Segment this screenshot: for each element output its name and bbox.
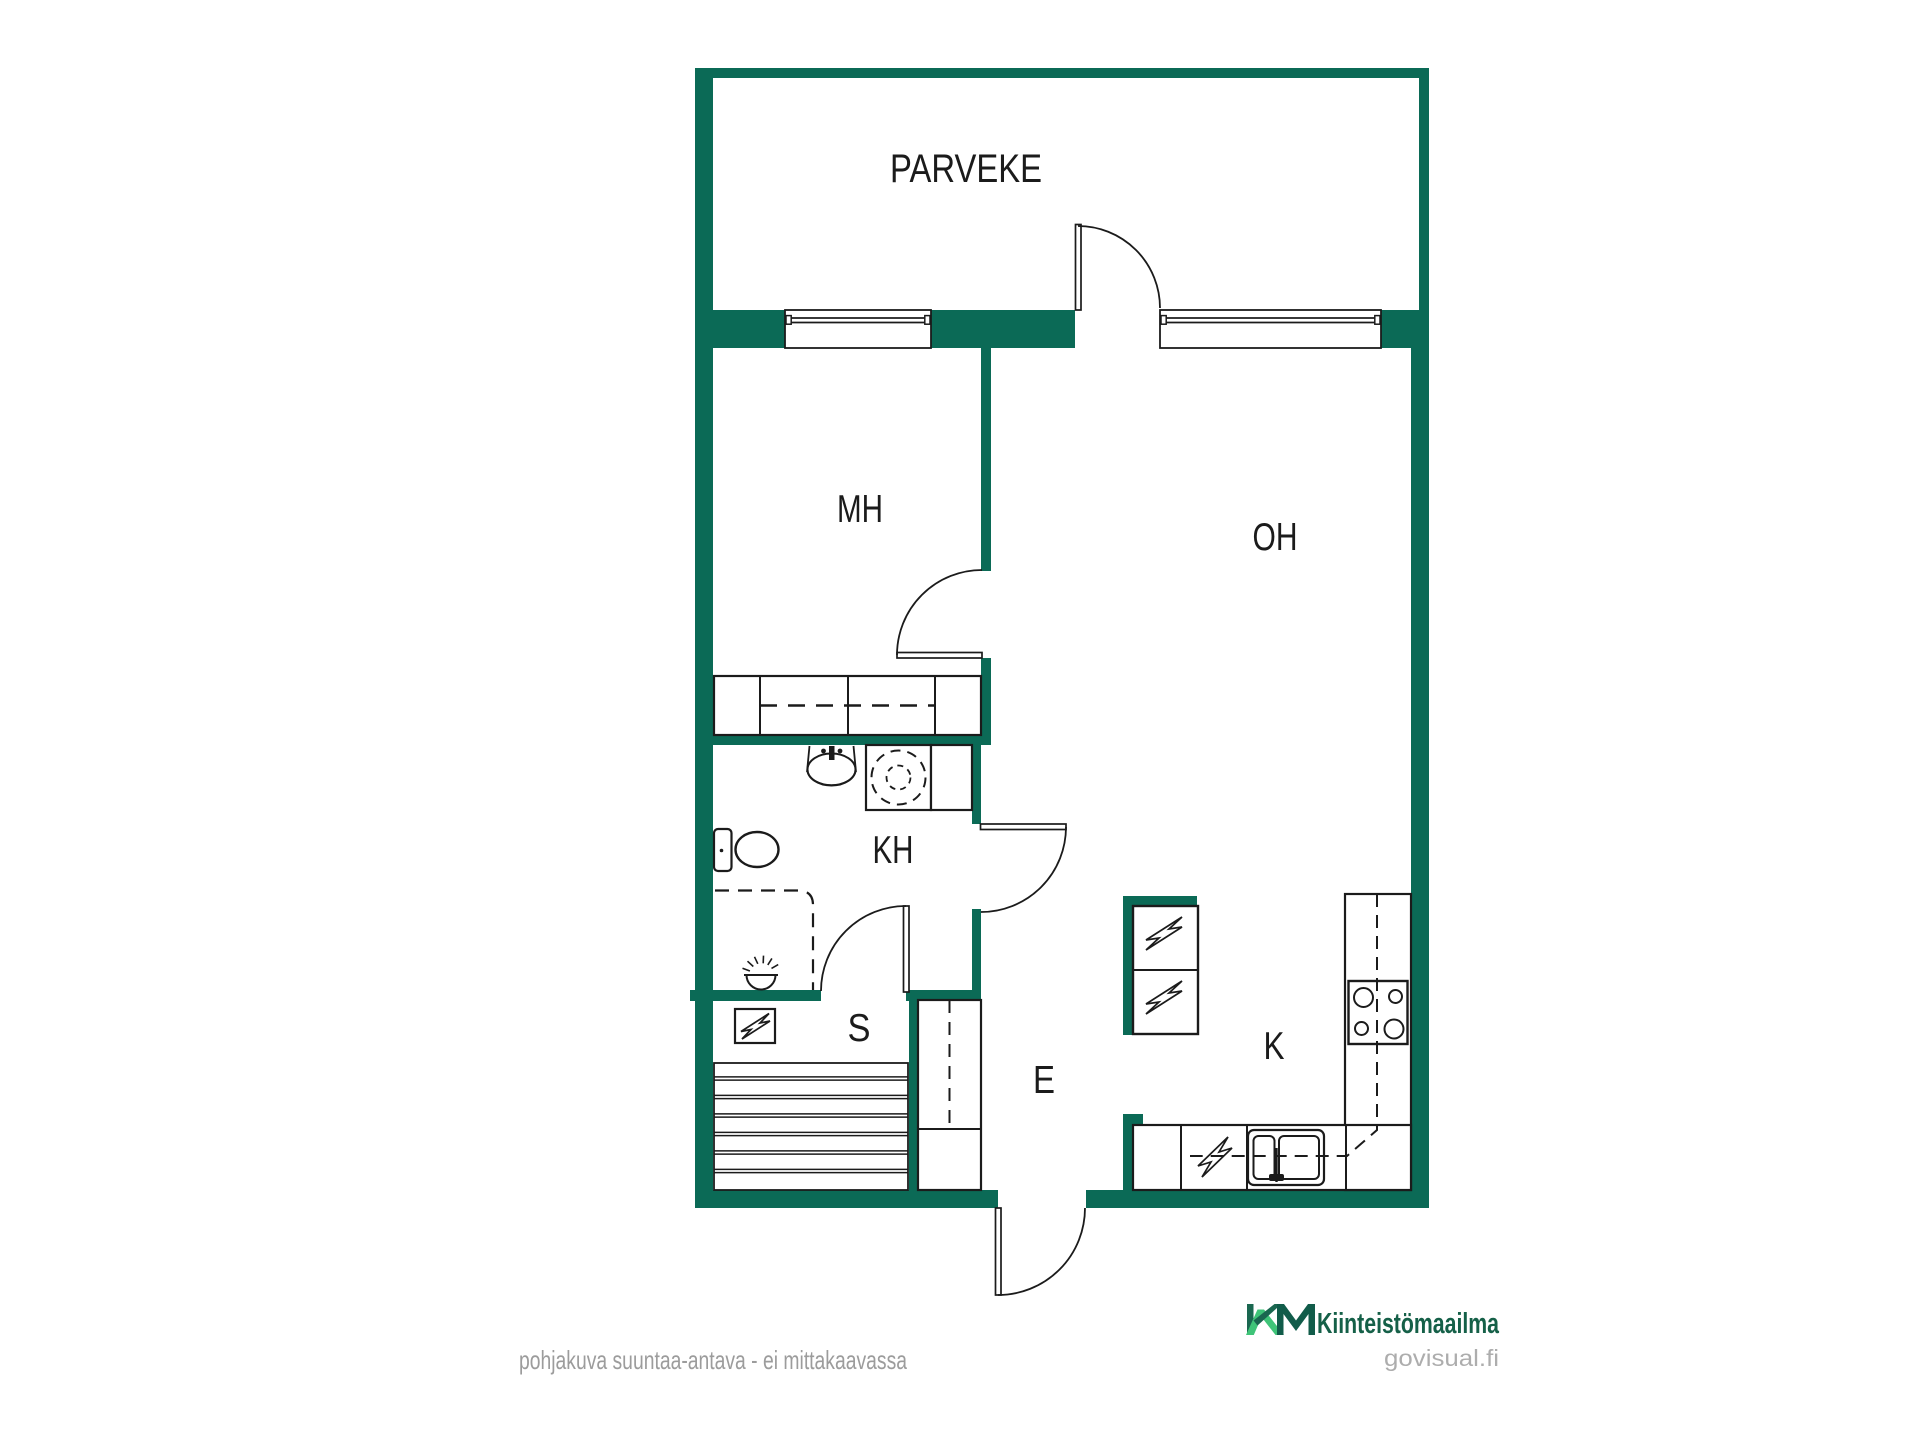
svg-text:pohjakuva suuntaa-antava - ei: pohjakuva suuntaa-antava - ei mittakaava… — [519, 1345, 907, 1375]
svg-text:E: E — [1033, 1059, 1055, 1102]
svg-text:KH: KH — [873, 829, 914, 872]
svg-text:PARVEKE: PARVEKE — [890, 147, 1042, 191]
svg-text:MH: MH — [837, 488, 883, 531]
svg-text:Kiinteistömaailma: Kiinteistömaailma — [1317, 1308, 1500, 1340]
svg-text:S: S — [848, 1007, 871, 1050]
svg-text:govisual.fi: govisual.fi — [1384, 1345, 1499, 1371]
svg-text:K: K — [1264, 1025, 1285, 1068]
svg-text:OH: OH — [1253, 516, 1298, 559]
